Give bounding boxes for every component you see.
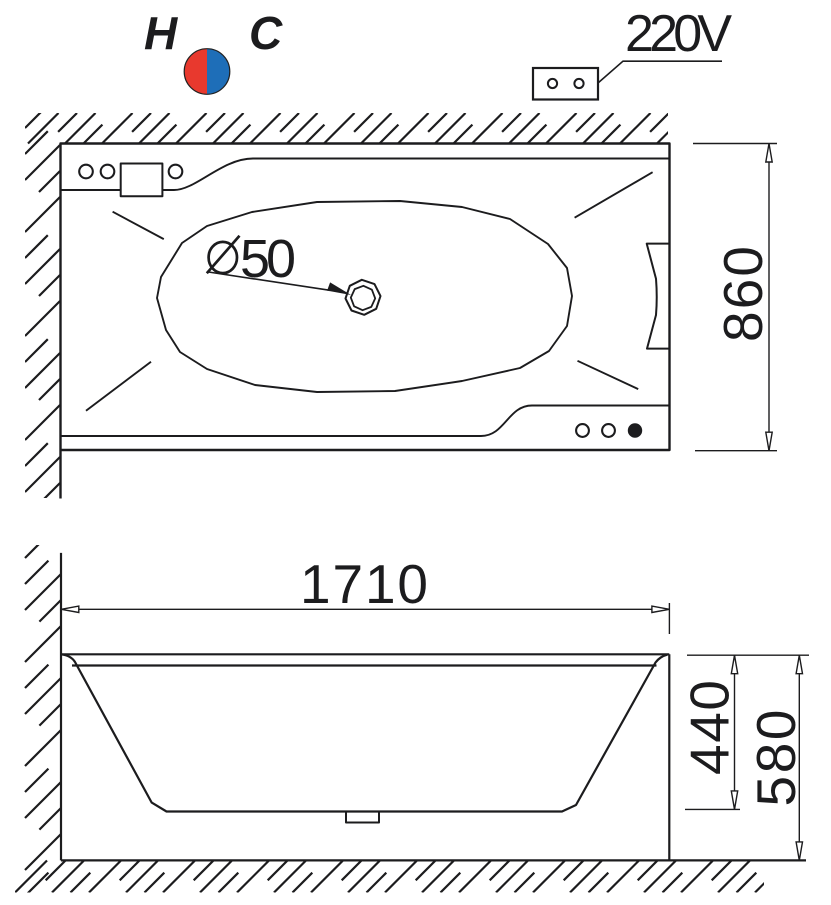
svg-text:50: 50 (240, 229, 296, 289)
svg-text:C: C (249, 7, 283, 59)
svg-text:220V: 220V (625, 5, 732, 63)
svg-text:860: 860 (712, 246, 774, 342)
svg-text:H: H (144, 7, 178, 59)
svg-text:580: 580 (745, 710, 807, 807)
svg-text:1710: 1710 (300, 553, 428, 615)
svg-text:440: 440 (679, 680, 741, 775)
